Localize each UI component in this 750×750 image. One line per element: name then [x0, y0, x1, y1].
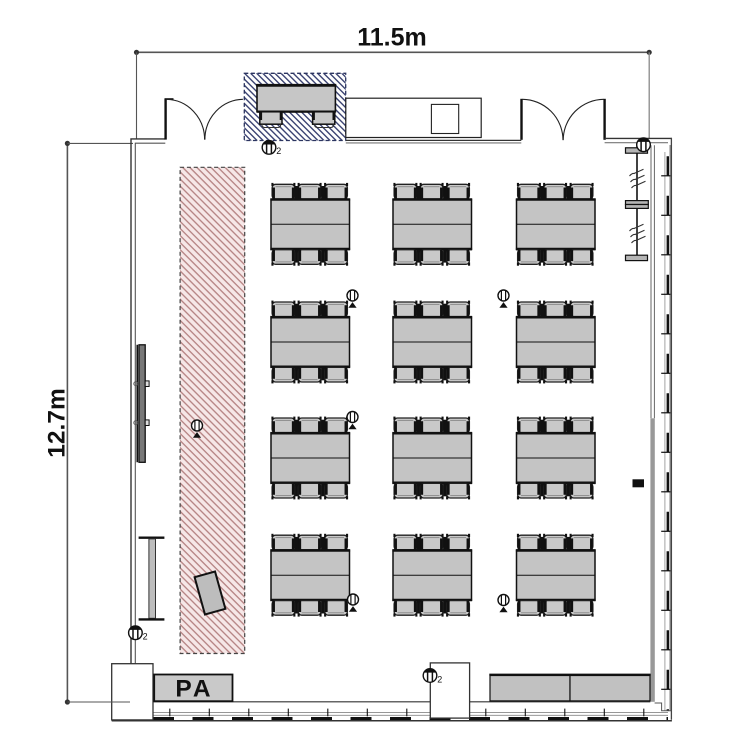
svg-text:12.7m: 12.7m — [44, 388, 71, 457]
svg-text:2: 2 — [437, 674, 442, 684]
svg-text:2: 2 — [276, 146, 281, 156]
svg-text:11.5m: 11.5m — [357, 24, 427, 52]
svg-text:PA: PA — [175, 675, 213, 702]
svg-text:2: 2 — [143, 632, 148, 642]
